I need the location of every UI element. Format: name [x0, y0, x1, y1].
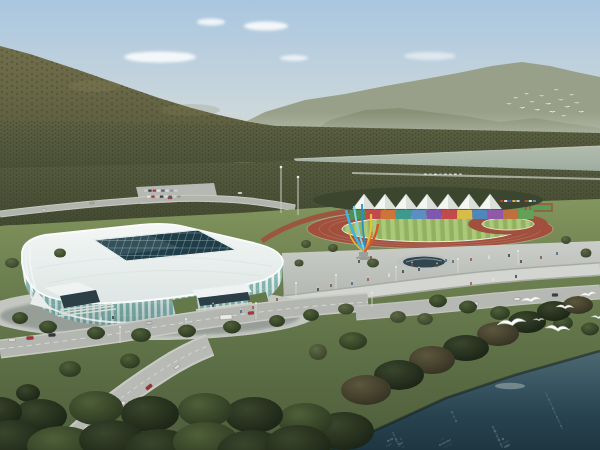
sparkle: [556, 416, 558, 418]
scene-illustration: [0, 0, 600, 450]
bus: [220, 314, 232, 319]
person-head: [112, 314, 114, 316]
pole-lamp: [185, 318, 187, 320]
pole-lamp: [255, 302, 257, 304]
car: [514, 297, 520, 300]
person-head: [508, 252, 510, 254]
parked-car: [424, 174, 427, 175]
person: [388, 274, 389, 277]
parked-car: [429, 174, 432, 175]
parked-car: [166, 190, 169, 192]
sparkle: [449, 439, 451, 441]
sparkle: [560, 425, 562, 427]
sparkle: [386, 445, 388, 447]
car: [26, 336, 33, 340]
sparkle: [507, 440, 509, 442]
sparkle: [445, 441, 447, 443]
sparkle: [447, 440, 449, 442]
sparkle: [548, 399, 550, 401]
sparkle: [550, 403, 552, 405]
pole-lamp: [457, 258, 459, 260]
tree: [269, 315, 285, 327]
sparkle: [396, 441, 398, 443]
parked-car: [439, 174, 442, 175]
person: [358, 260, 359, 263]
person: [470, 258, 471, 261]
person-head: [520, 258, 522, 260]
parked-car: [444, 174, 447, 175]
sparkle: [455, 420, 457, 422]
person: [452, 260, 453, 263]
rainbow-segment: [427, 210, 442, 219]
tree: [12, 312, 28, 324]
person: [488, 256, 489, 259]
sparkle: [501, 446, 503, 448]
parked-car: [148, 190, 151, 192]
parked-car: [173, 196, 176, 198]
car: [48, 333, 55, 337]
sparkle: [495, 433, 497, 435]
person: [445, 259, 446, 262]
parked-car: [170, 190, 173, 192]
sparkle: [390, 443, 392, 445]
rainbow-wall-group: [350, 210, 534, 219]
parked-car: [500, 200, 503, 202]
person: [436, 264, 437, 267]
sparkle: [450, 443, 451, 444]
person-head: [470, 280, 472, 282]
parked-car: [156, 196, 159, 198]
sparkle: [496, 434, 499, 437]
sparkle: [503, 442, 505, 444]
tree: [178, 393, 232, 427]
person-head: [212, 302, 214, 304]
sparkle: [553, 410, 554, 411]
person-head: [388, 272, 390, 274]
sparkle: [444, 446, 445, 447]
person-head: [556, 250, 558, 252]
person-head: [470, 256, 472, 258]
sparkle: [500, 443, 503, 446]
tree: [5, 258, 19, 268]
sparkle: [451, 411, 453, 413]
parked-car: [160, 196, 163, 198]
sparkle: [441, 443, 443, 445]
car: [248, 311, 254, 314]
parked-car: [151, 196, 154, 198]
person-head: [488, 254, 490, 256]
tree: [390, 311, 406, 323]
person: [112, 316, 113, 319]
sparkle: [557, 419, 558, 420]
tree: [339, 332, 367, 350]
parked-car: [459, 174, 462, 175]
parked-car: [449, 174, 452, 175]
person-head: [358, 258, 360, 260]
sparkle: [397, 443, 399, 445]
sparkle: [499, 441, 501, 443]
pole-lamp: [371, 292, 373, 294]
sparkle: [402, 446, 404, 448]
car: [42, 209, 47, 211]
person-head: [370, 254, 372, 256]
sparkle: [492, 426, 495, 429]
person-head: [351, 280, 353, 282]
person-head: [252, 304, 254, 306]
tree: [225, 397, 283, 433]
cloud: [404, 52, 456, 60]
sparkle: [502, 438, 505, 441]
sparkle: [394, 436, 396, 438]
sparkle: [399, 443, 401, 445]
sparkle: [559, 423, 560, 424]
sparkle: [508, 444, 511, 447]
tree: [328, 244, 338, 252]
person: [470, 282, 471, 285]
car: [146, 321, 152, 325]
person: [240, 310, 241, 313]
parked-car: [157, 190, 160, 192]
person: [556, 252, 557, 255]
sparkle: [442, 438, 443, 439]
parked-car: [516, 200, 519, 202]
person: [540, 256, 541, 259]
car: [552, 293, 558, 296]
rainbow-segment: [365, 210, 380, 219]
sparkle: [395, 438, 397, 440]
parked-car: [504, 200, 507, 202]
parked-car: [521, 200, 524, 202]
sparkle: [401, 442, 403, 444]
sparkle: [448, 444, 449, 445]
person-head: [317, 286, 319, 288]
parked-car: [512, 200, 515, 202]
sparkle: [551, 406, 552, 407]
parked-car: [533, 200, 536, 202]
person: [520, 260, 521, 263]
parked-car: [164, 196, 167, 198]
person-head: [100, 316, 102, 318]
person-head: [515, 273, 517, 275]
rainbow-segment: [396, 210, 411, 219]
pole-lamp: [119, 326, 121, 328]
sparkle: [558, 420, 560, 422]
sparkle: [554, 412, 556, 414]
person: [402, 270, 403, 273]
person: [276, 298, 277, 301]
tree: [367, 259, 379, 268]
rainbow-segment: [472, 210, 487, 219]
tree: [39, 321, 57, 334]
person-head: [492, 276, 494, 278]
person: [492, 278, 493, 281]
tree: [120, 354, 140, 369]
cloud: [244, 22, 288, 31]
parked-car: [508, 200, 511, 202]
sparkle: [400, 438, 402, 440]
sparkle: [547, 397, 548, 398]
tree: [561, 236, 571, 244]
cloud: [197, 19, 225, 26]
person-head: [436, 262, 438, 264]
sparkle: [555, 414, 556, 415]
sparkle: [494, 430, 497, 433]
person-head: [367, 276, 369, 278]
person: [367, 278, 368, 281]
parked-car: [454, 174, 457, 175]
tree: [459, 301, 477, 314]
person: [370, 256, 371, 259]
person: [212, 304, 213, 307]
sparkle: [549, 401, 550, 402]
person-head: [452, 258, 454, 260]
sparkle: [505, 441, 507, 443]
sparkle: [393, 434, 395, 436]
sparkle: [498, 439, 501, 442]
parked-car: [174, 190, 177, 192]
tree: [303, 309, 319, 321]
person-head: [402, 268, 404, 270]
sparkle: [452, 414, 453, 415]
rainbow-segment: [411, 210, 426, 219]
pole-lamp: [280, 166, 283, 169]
sparkle: [552, 407, 554, 409]
pole-lamp: [295, 282, 297, 284]
tree: [69, 391, 123, 425]
person-head: [540, 254, 542, 256]
parked-car: [153, 190, 156, 192]
pole-lamp: [517, 250, 519, 252]
rainbow-segment: [488, 210, 503, 219]
skate-bowl: [397, 255, 451, 270]
tree: [54, 249, 66, 258]
sparkle: [392, 432, 394, 434]
person-head: [418, 266, 420, 268]
rainbow-segment: [503, 210, 518, 219]
sparkle: [439, 444, 441, 446]
person-head: [276, 296, 278, 298]
tree: [295, 260, 304, 267]
parked-car: [434, 174, 437, 175]
car: [8, 338, 15, 342]
pole-lamp: [297, 176, 300, 179]
tree: [131, 328, 151, 342]
person: [330, 284, 331, 287]
tree: [341, 375, 391, 405]
sparkle: [497, 437, 499, 439]
sculpture-pedestal: [359, 252, 368, 256]
tree: [87, 327, 105, 340]
person: [100, 318, 101, 321]
tree: [301, 240, 311, 248]
sparkle: [453, 416, 455, 418]
sparkle: [454, 418, 455, 419]
rainbow-segment: [518, 210, 533, 219]
tree: [429, 295, 447, 308]
person: [515, 275, 516, 278]
person-head: [445, 257, 447, 259]
person: [508, 254, 509, 257]
person-head: [240, 308, 242, 310]
tree: [223, 321, 241, 334]
sparkle: [443, 442, 445, 444]
person-head: [330, 282, 332, 284]
sparkle: [391, 438, 393, 440]
pole-lamp: [395, 266, 397, 268]
tree: [563, 296, 593, 314]
tree: [338, 304, 354, 315]
person: [351, 282, 352, 285]
parked-car: [525, 200, 528, 202]
rainbow-segment: [442, 210, 457, 219]
sparkle: [546, 394, 548, 396]
rainbow-segment: [381, 210, 396, 219]
sparkle: [388, 444, 390, 446]
sparkle: [545, 392, 546, 393]
parked-car: [147, 196, 150, 198]
tree: [309, 344, 327, 360]
sparkle: [561, 427, 562, 428]
person: [317, 288, 318, 291]
tree: [178, 325, 196, 338]
parked-car: [144, 190, 147, 192]
car: [238, 192, 243, 194]
person: [411, 263, 412, 266]
tree: [417, 313, 433, 325]
tree: [59, 361, 81, 377]
parked-car: [161, 190, 164, 192]
pole-lamp: [335, 274, 337, 276]
cloud: [124, 52, 196, 63]
person: [252, 306, 253, 309]
tree: [490, 306, 510, 320]
person-head: [411, 261, 413, 263]
sparkle: [398, 445, 400, 447]
car: [90, 202, 95, 204]
sparkle: [440, 439, 441, 440]
parked-car: [529, 200, 532, 202]
tree: [581, 323, 599, 336]
car: [168, 197, 173, 199]
sparkle: [387, 440, 389, 442]
tree: [581, 249, 592, 258]
sparkle: [389, 439, 391, 441]
water-reflection: [495, 383, 525, 389]
person: [418, 268, 419, 271]
sparkle: [446, 445, 447, 446]
screenshot-canvas: [0, 0, 600, 450]
cloud: [280, 55, 308, 61]
parked-car: [177, 196, 180, 198]
rainbow-segment: [457, 210, 472, 219]
sparkle: [493, 428, 495, 430]
